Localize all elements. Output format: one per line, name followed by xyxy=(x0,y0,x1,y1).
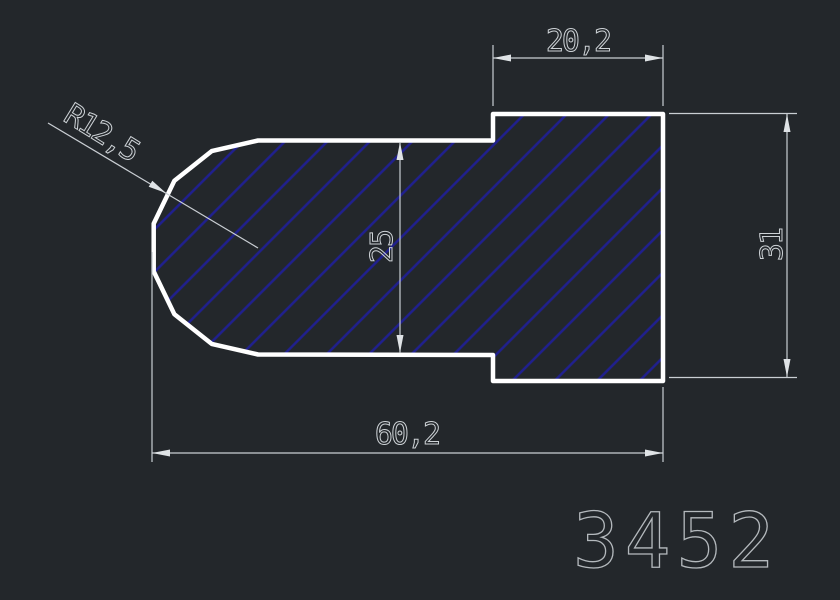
dim-top-width-arrow-left xyxy=(493,55,511,62)
dim-top-width: 20,2 xyxy=(493,24,663,106)
dim-total-width-arrow-left xyxy=(152,450,170,457)
dim-radius-arrow xyxy=(149,181,166,193)
dim-total-width-arrow-right xyxy=(645,450,663,457)
dim-right-height-arrow-top xyxy=(784,114,791,132)
part-cross-section xyxy=(154,114,663,381)
dim-total-width-label: 60,2 xyxy=(375,417,439,452)
dim-right-height: 31 xyxy=(669,114,797,378)
dim-radius-label: R12,5 xyxy=(58,97,145,169)
dim-top-width-label: 20,2 xyxy=(546,24,610,59)
dim-right-height-label: 31 xyxy=(755,228,790,261)
dim-right-height-arrow-bottom xyxy=(784,359,791,377)
dim-top-width-arrow-right xyxy=(645,55,663,62)
cad-drawing: 20,2 R12,5 25 31 xyxy=(0,0,840,600)
cad-drawing-canvas[interactable]: 20,2 R12,5 25 31 xyxy=(0,0,840,600)
part-number-label: 3452 xyxy=(573,496,780,585)
dim-inner-height-label: 25 xyxy=(365,231,400,263)
